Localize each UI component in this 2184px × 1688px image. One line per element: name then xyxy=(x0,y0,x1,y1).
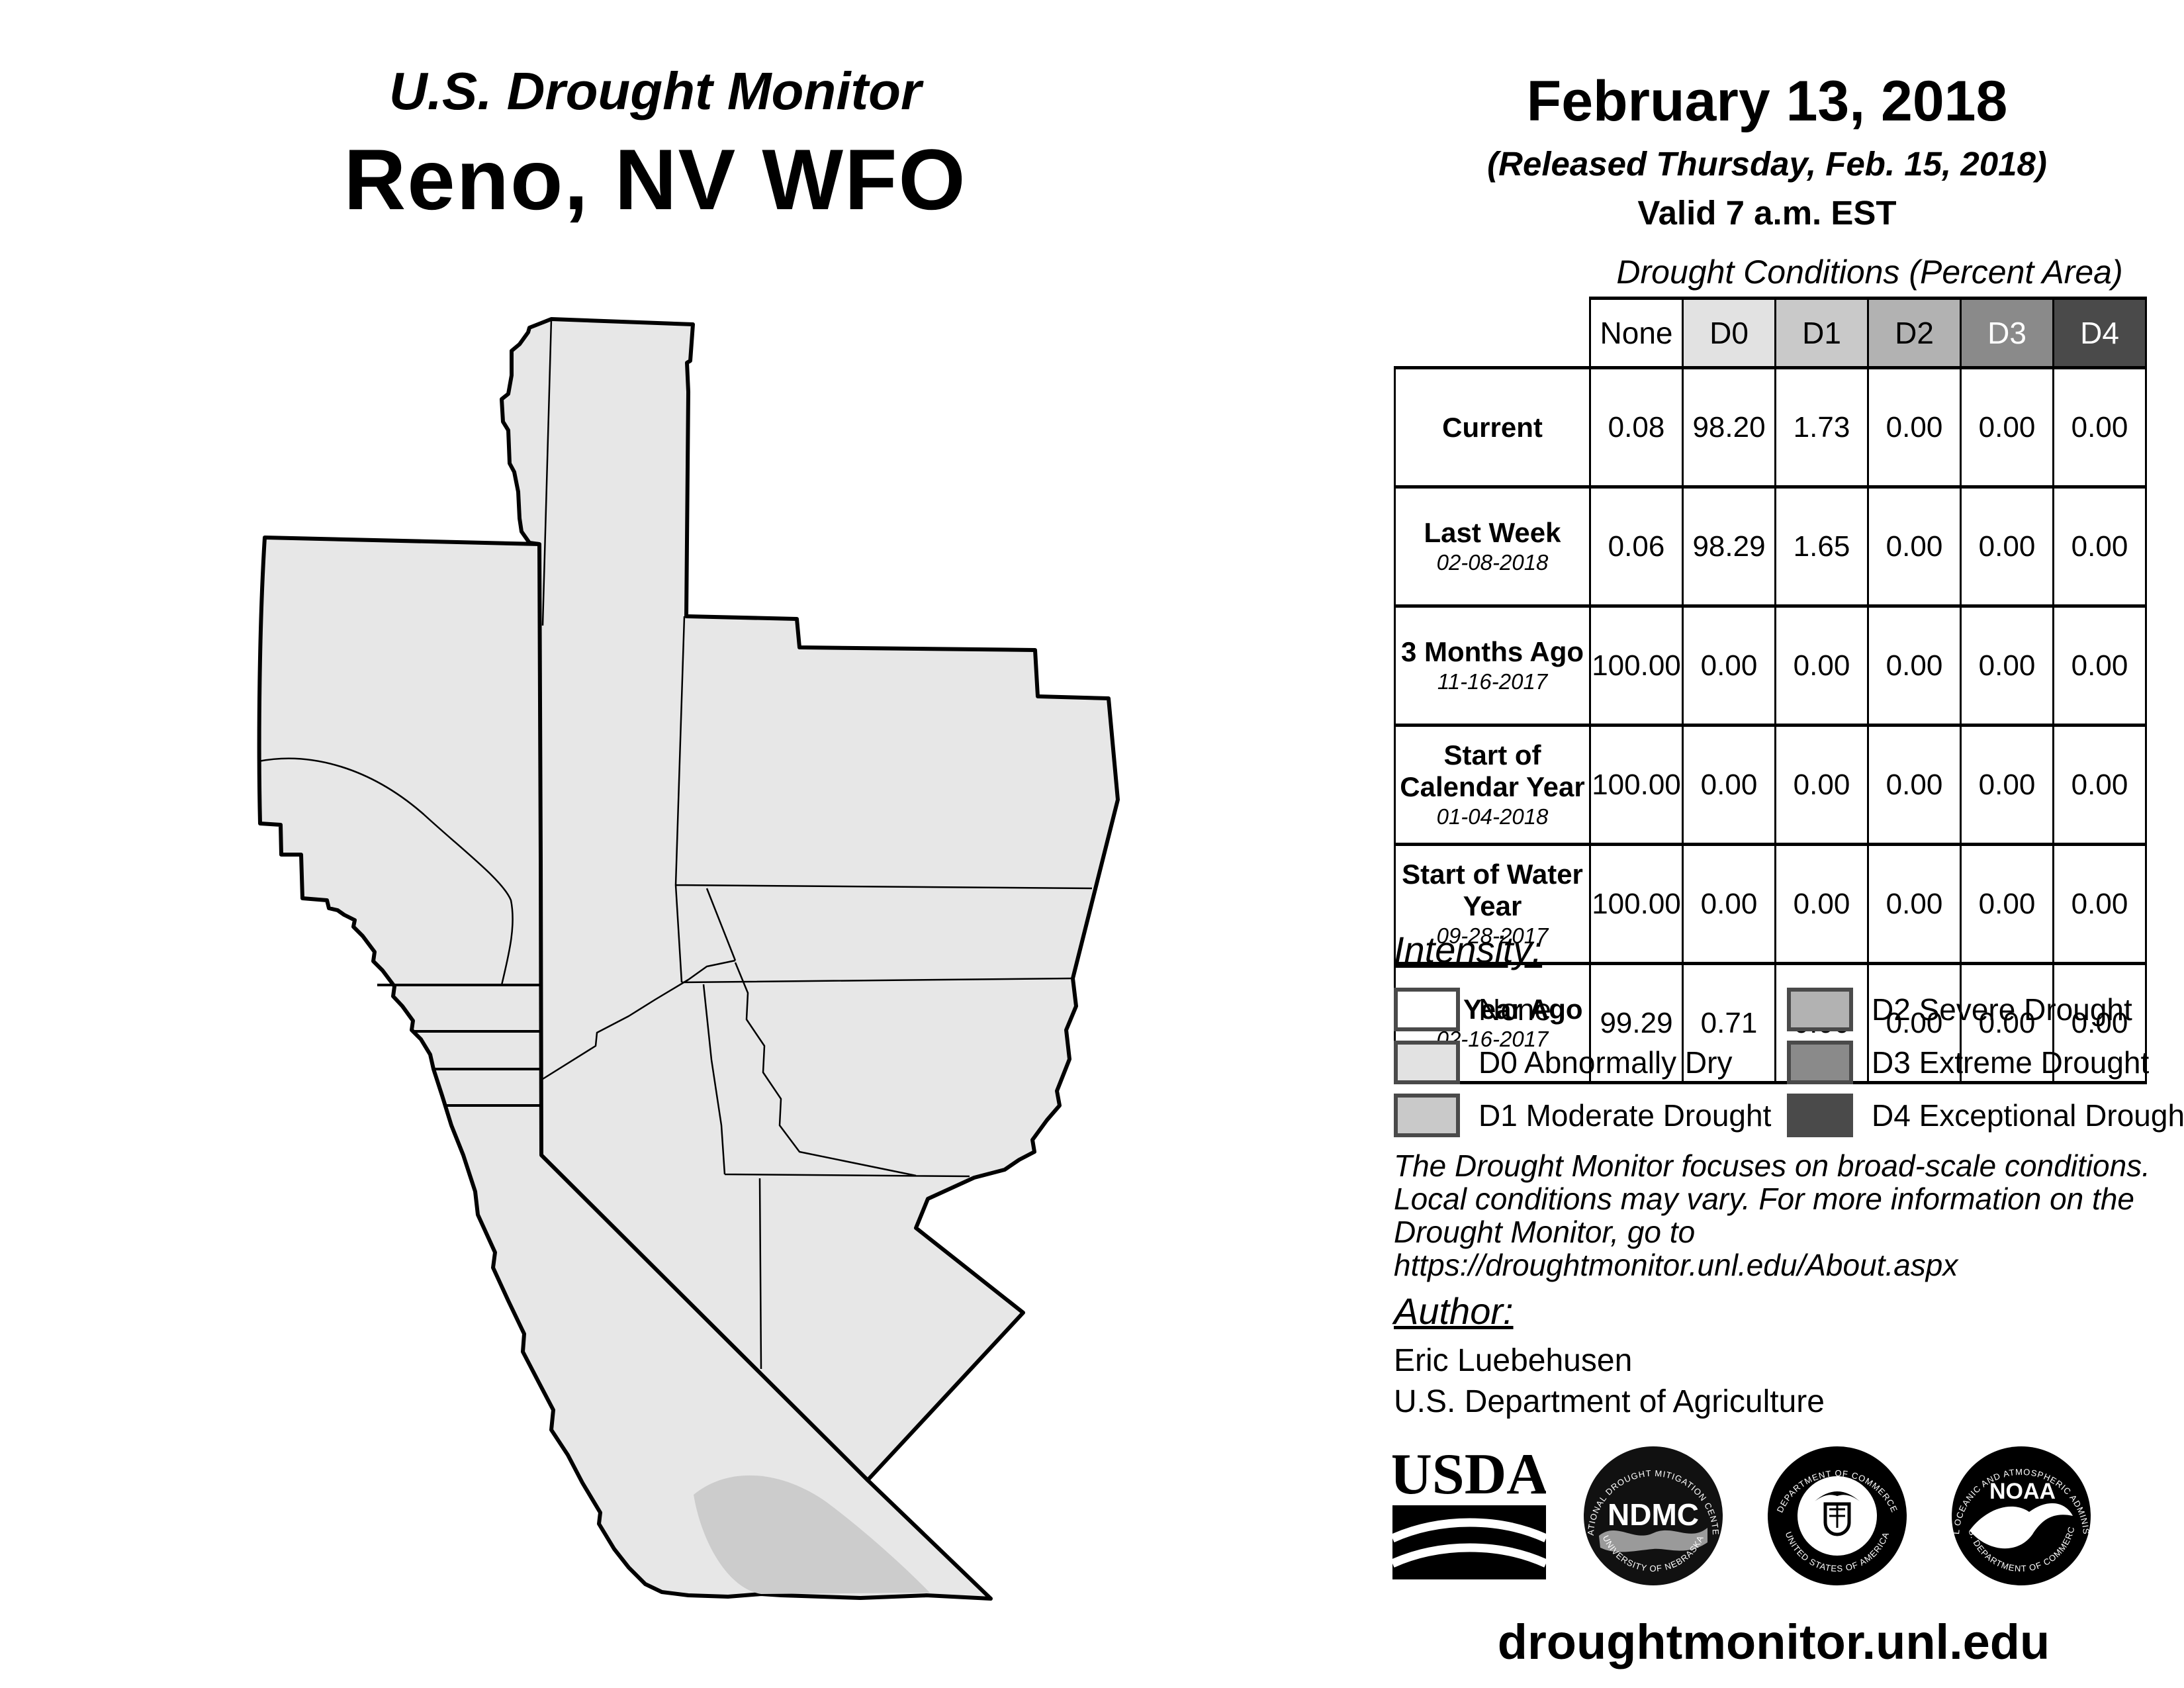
legend-item-d0: D0 Abnormally Dry xyxy=(1394,1041,1732,1084)
noaa-logo: NATIONAL OCEANIC AND ATMOSPHERIC ADMINIS… xyxy=(1948,1443,2094,1589)
legend-title: Intensity: xyxy=(1394,928,1542,971)
value-cell: 0.00 xyxy=(1961,845,2054,964)
value-cell: 0.00 xyxy=(2054,368,2146,487)
legend-swatch-none xyxy=(1394,988,1460,1031)
disclaimer-line: Drought Monitor, go to https://droughtmo… xyxy=(1394,1215,2184,1282)
author-name: Eric Luebehusen xyxy=(1394,1342,1632,1379)
value-cell: 0.00 xyxy=(1776,726,1868,845)
legend-label: D1 Moderate Drought xyxy=(1479,1098,1771,1133)
value-cell: 0.00 xyxy=(1961,487,2054,606)
value-cell: 0.00 xyxy=(1961,606,2054,726)
value-cell: 0.00 xyxy=(1961,726,2054,845)
row-label: Current xyxy=(1395,368,1590,487)
author-title: Author: xyxy=(1394,1289,1514,1333)
table-header-row: None D0 D1 D2 D3 D4 xyxy=(1395,299,2146,368)
ndmc-logo: NATIONAL DROUGHT MITIGATION CENTER UNIVE… xyxy=(1580,1443,1726,1589)
value-cell: 0.06 xyxy=(1590,487,1683,606)
value-cell: 0.00 xyxy=(1683,726,1776,845)
value-cell: 100.00 xyxy=(1590,606,1683,726)
legend-item-d2: D2 Severe Drought xyxy=(1787,988,2132,1031)
value-cell: 0.00 xyxy=(1776,606,1868,726)
ndmc-center-text: NDMC xyxy=(1608,1497,1699,1532)
legend-swatch-d2 xyxy=(1787,988,1853,1031)
value-cell: 0.08 xyxy=(1590,368,1683,487)
table-row: Start of Calendar Year01-04-2018 100.00 … xyxy=(1395,726,2146,845)
wfo-map xyxy=(238,298,1128,1615)
col-header-d2: D2 xyxy=(1868,299,1961,368)
usda-logo: USDA xyxy=(1392,1443,1546,1587)
legend-label: D3 Extreme Drought xyxy=(1872,1045,2149,1080)
col-header-d3: D3 xyxy=(1961,299,2054,368)
disclaimer-line: Local conditions may vary. For more info… xyxy=(1394,1182,2184,1215)
row-label: Last Week02-08-2018 xyxy=(1395,487,1590,606)
report-date: February 13, 2018 xyxy=(1390,69,2144,134)
value-cell: 0.00 xyxy=(1868,368,1961,487)
table-title: Drought Conditions (Percent Area) xyxy=(1588,253,2151,291)
value-cell: 0.00 xyxy=(2054,845,2146,964)
legend-item-d3: D3 Extreme Drought xyxy=(1787,1041,2149,1084)
col-header-d0: D0 xyxy=(1683,299,1776,368)
map-region-d0 xyxy=(259,319,1118,1599)
disclaimer-line: The Drought Monitor focuses on broad-sca… xyxy=(1394,1149,2184,1182)
value-cell: 98.20 xyxy=(1683,368,1776,487)
legend-label: D2 Severe Drought xyxy=(1872,992,2132,1027)
disclaimer: The Drought Monitor focuses on broad-sca… xyxy=(1394,1149,2184,1282)
value-cell: 0.00 xyxy=(1868,487,1961,606)
site-url: droughtmonitor.unl.edu xyxy=(1390,1614,2158,1670)
col-header-none: None xyxy=(1590,299,1683,368)
row-label: Start of Calendar Year01-04-2018 xyxy=(1395,726,1590,845)
legend-label: D0 Abnormally Dry xyxy=(1479,1045,1732,1080)
usda-logo-text: USDA xyxy=(1392,1443,1546,1507)
noaa-center-text: NOAA xyxy=(1989,1479,2056,1504)
legend-swatch-d1 xyxy=(1394,1094,1460,1137)
col-header-d1: D1 xyxy=(1776,299,1868,368)
release-date: (Released Thursday, Feb. 15, 2018) xyxy=(1390,144,2144,183)
page: U.S. Drought Monitor Reno, NV WFO Februa… xyxy=(0,0,2184,1688)
value-cell: 0.00 xyxy=(1868,606,1961,726)
value-cell: 0.00 xyxy=(1683,606,1776,726)
row-label: 3 Months Ago11-16-2017 xyxy=(1395,606,1590,726)
value-cell: 100.00 xyxy=(1590,845,1683,964)
value-cell: 1.65 xyxy=(1776,487,1868,606)
value-cell: 0.00 xyxy=(2054,726,2146,845)
value-cell: 0.00 xyxy=(1868,845,1961,964)
doc-logo: DEPARTMENT OF COMMERCE UNITED STATES OF … xyxy=(1764,1443,1910,1589)
value-cell: 1.73 xyxy=(1776,368,1868,487)
table-row: Last Week02-08-2018 0.06 98.29 1.65 0.00… xyxy=(1395,487,2146,606)
value-cell: 0.00 xyxy=(1868,726,1961,845)
legend-label: D4 Exceptional Drought xyxy=(1872,1098,2184,1133)
legend-item-none: None xyxy=(1394,988,1551,1031)
legend-swatch-d4 xyxy=(1787,1094,1853,1137)
valid-time: Valid 7 a.m. EST xyxy=(1390,193,2144,232)
monitor-title: U.S. Drought Monitor xyxy=(225,61,1085,122)
region-title: Reno, NV WFO xyxy=(225,130,1085,229)
usda-field xyxy=(1392,1505,1546,1579)
value-cell: 0.00 xyxy=(1683,845,1776,964)
legend-swatch-d3 xyxy=(1787,1041,1853,1084)
legend-swatch-d0 xyxy=(1394,1041,1460,1084)
value-cell: 0.00 xyxy=(1961,368,2054,487)
value-cell: 0.00 xyxy=(2054,606,2146,726)
value-cell: 98.29 xyxy=(1683,487,1776,606)
legend-label: None xyxy=(1479,992,1551,1027)
value-cell: 0.00 xyxy=(2054,487,2146,606)
header-blank-cell xyxy=(1395,299,1590,368)
value-cell: 100.00 xyxy=(1590,726,1683,845)
table-row: 3 Months Ago11-16-2017 100.00 0.00 0.00 … xyxy=(1395,606,2146,726)
col-header-d4: D4 xyxy=(2054,299,2146,368)
value-cell: 0.00 xyxy=(1776,845,1868,964)
legend-item-d4: D4 Exceptional Drought xyxy=(1787,1094,2184,1137)
author-org: U.S. Department of Agriculture xyxy=(1394,1383,1825,1420)
legend-item-d1: D1 Moderate Drought xyxy=(1394,1094,1771,1137)
table-row: Current 0.08 98.20 1.73 0.00 0.00 0.00 xyxy=(1395,368,2146,487)
